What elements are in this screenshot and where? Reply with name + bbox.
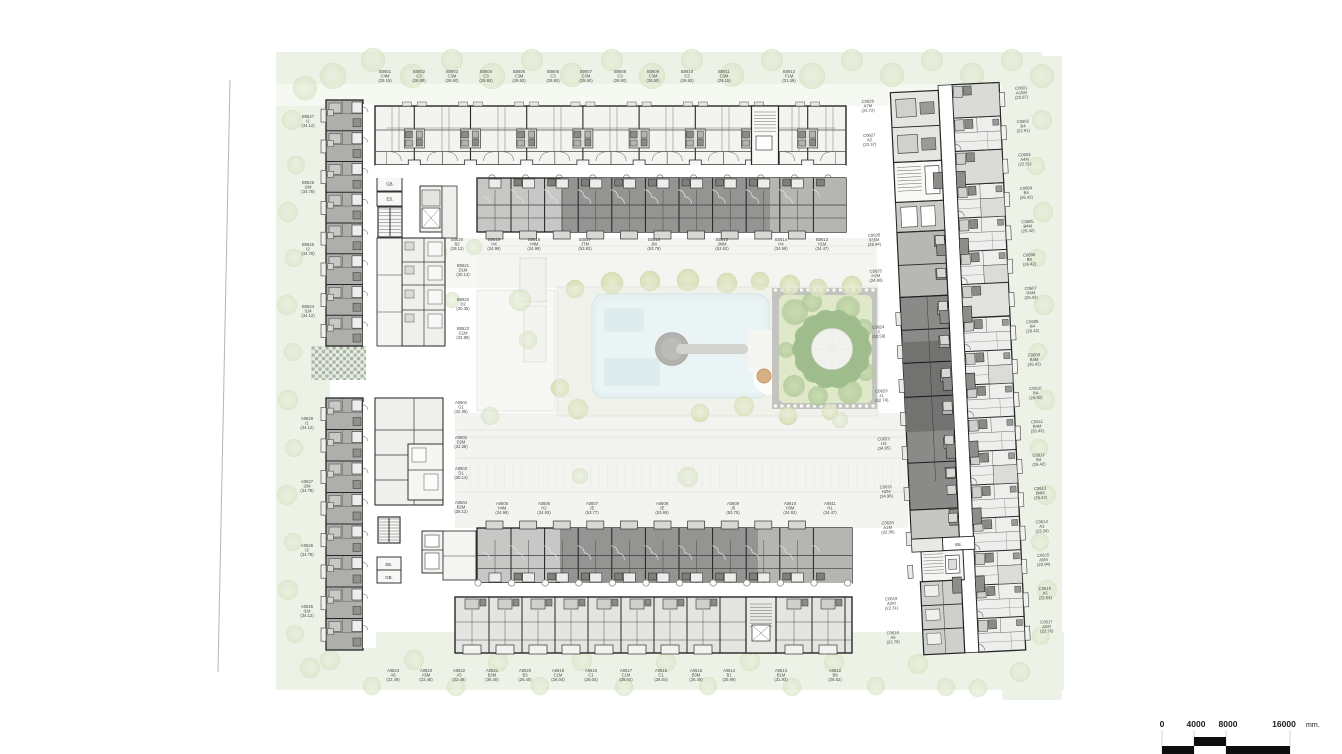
svg-text:8000: 8000 bbox=[1219, 719, 1238, 729]
svg-text:EE.: EE. bbox=[385, 562, 392, 567]
svg-text:0: 0 bbox=[1160, 719, 1165, 729]
svg-text:C0601A15M(22.87): C0601A15M(22.87) bbox=[1014, 85, 1029, 100]
svg-text:GB.: GB. bbox=[385, 575, 393, 580]
svg-text:ES.: ES. bbox=[386, 197, 393, 202]
svg-text:EE.: EE. bbox=[955, 542, 962, 547]
svg-text:16000: 16000 bbox=[1272, 719, 1296, 729]
svg-text:GB.: GB. bbox=[386, 182, 394, 187]
svg-text:mm.: mm. bbox=[1306, 722, 1320, 729]
svg-text:4000: 4000 bbox=[1187, 719, 1206, 729]
